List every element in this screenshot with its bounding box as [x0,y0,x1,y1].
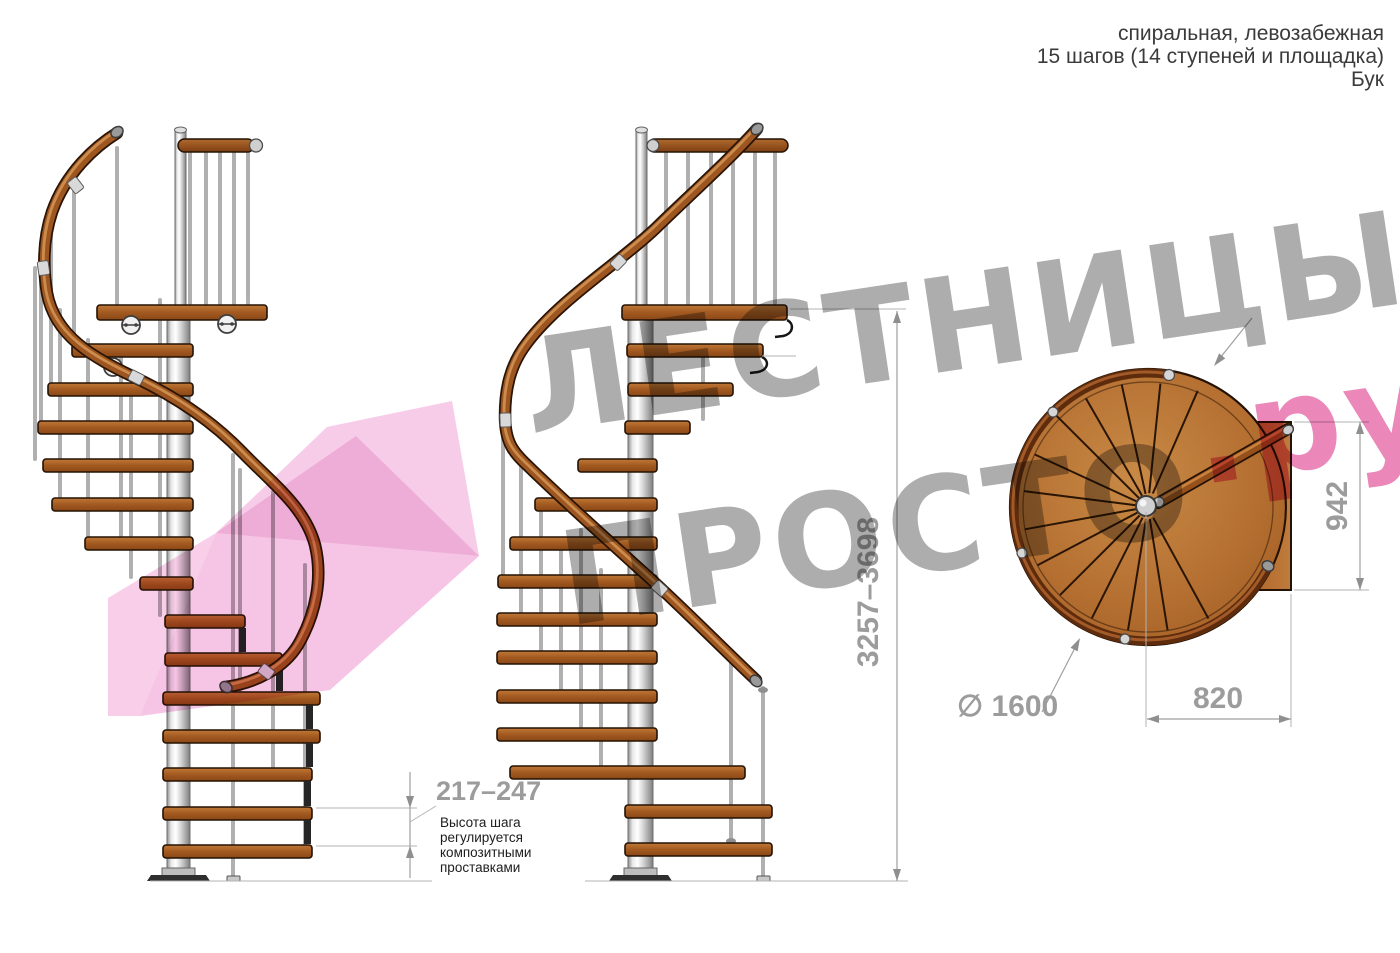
note-line-3: композитными [440,845,531,860]
dim-landing-depth: 942 [1294,422,1369,590]
note-step-height: Высота шага регулируется композитными пр… [440,815,531,875]
center-pole-upper [636,129,647,310]
handrail-end-ball [250,139,263,152]
plan-leader-arrow [1214,318,1252,366]
total-height-label: 3257–3698 [852,517,885,667]
pole-base-collar [162,868,195,876]
steps [497,305,787,856]
pole-base-flange [609,875,672,881]
note-line-1: Высота шага [440,815,521,830]
middle-elevation-view [497,121,796,881]
landing-depth-label: 942 [1321,481,1354,531]
handrail-collar [647,140,659,152]
landing-board [97,305,267,320]
dim-diameter-leader: ∅ 1600 [957,638,1080,723]
landing-width-label: 820 [1193,682,1243,715]
landing-handrail-bar [648,139,788,152]
pole-cap [175,127,187,133]
plan-view [1010,369,1295,645]
center-pole-upper [175,129,186,310]
note-line-4: проставками [440,860,520,875]
landing-board [622,305,787,320]
pole-highlight [1140,500,1147,507]
note-line-2: регулируется [440,830,523,845]
pole-base-flange [147,875,210,881]
spec-steps: 15 шагов (14 ступеней и площадка) [1037,45,1384,68]
staircase-drawing: 3257–3698 217–247 Высота шага регулирует… [0,0,1400,953]
spec-material: Бук [1037,68,1384,91]
watermark-arrow-logo [108,401,479,716]
drawing-page: 3257–3698 217–247 Высота шага регулирует… [0,0,1400,953]
product-spec-header: спиральная, левозабежная 15 шагов (14 ст… [1037,22,1384,91]
spec-type: спиральная, левозабежная [1037,22,1384,45]
step-height-label: 217–247 [436,776,541,806]
diameter-label: ∅ 1600 [957,690,1058,723]
landing-handrail-bar [178,139,254,152]
